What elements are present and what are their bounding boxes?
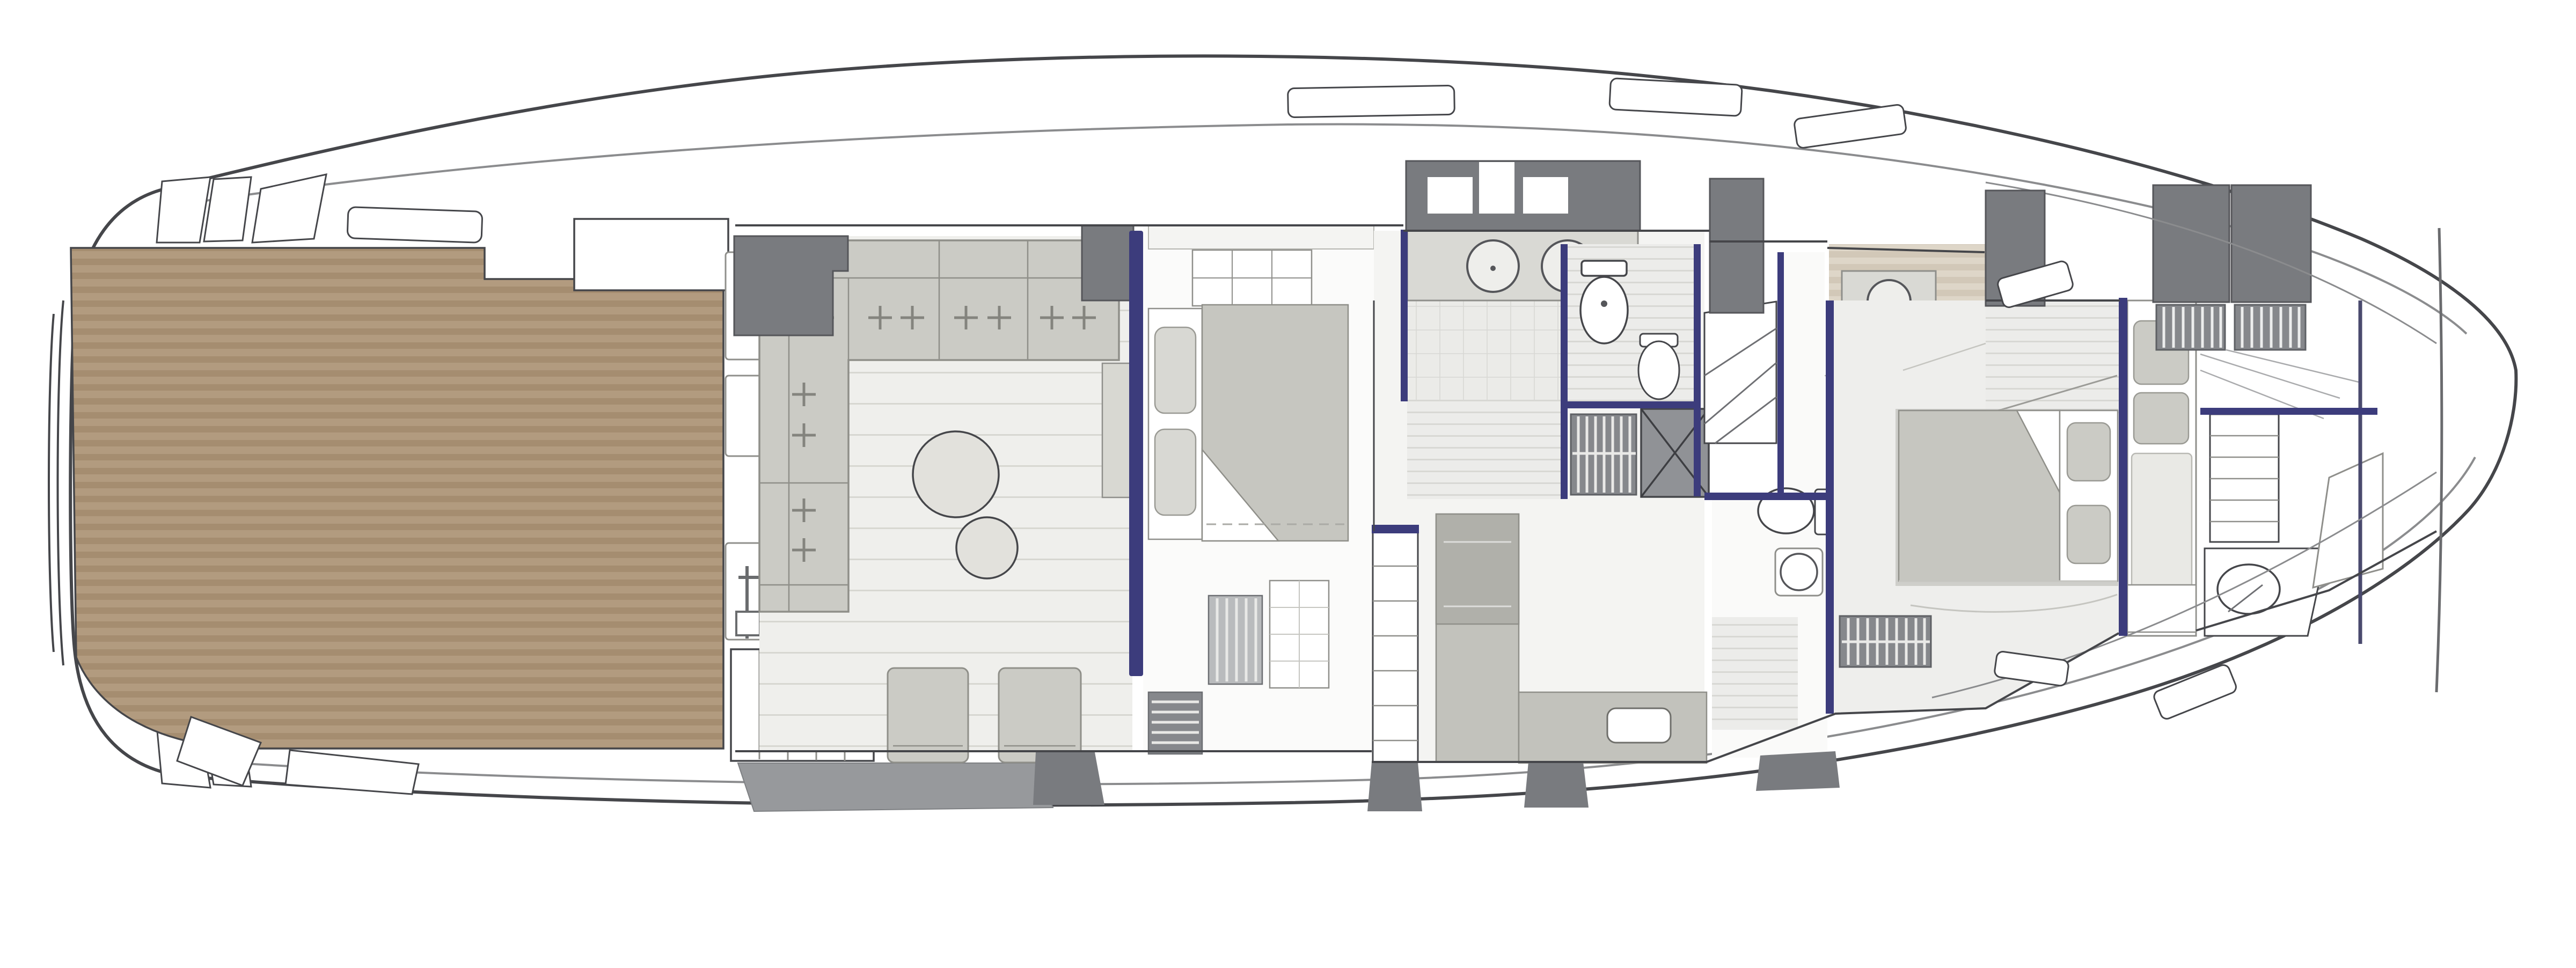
stairs-landing <box>738 763 1053 811</box>
wall-toiletroom-right <box>1694 244 1701 496</box>
master-pillow-1 <box>2067 423 2110 481</box>
coffee-table-small <box>956 517 1018 578</box>
floor-grating <box>1571 414 1636 495</box>
pier-3 <box>1524 762 1589 808</box>
day-head-bathroom <box>1407 231 1709 499</box>
toilet-room <box>1568 244 1694 405</box>
wall-stairs-cap <box>1372 525 1419 533</box>
vip-mirror-cabinet <box>1270 581 1329 688</box>
master-sink <box>1775 548 1823 596</box>
galley-sink <box>1607 708 1671 743</box>
master-bathroom <box>1712 488 1829 758</box>
bulkhead-salon-left <box>734 236 848 335</box>
galley-cooktop <box>1436 514 1519 624</box>
vip-pillow-2 <box>1155 429 1196 515</box>
berth-cushion-2 <box>2134 393 2189 444</box>
vip-window-sill <box>1148 225 1374 249</box>
wall-hall-left <box>1777 252 1784 494</box>
vip-cabin <box>1143 225 1374 754</box>
pier-2 <box>1367 762 1422 811</box>
master-cabin <box>1834 300 2119 714</box>
yacht-deck-plan-svg <box>0 0 2576 968</box>
armchair-left <box>888 668 968 762</box>
hatch-2 <box>1609 78 1743 116</box>
bidet <box>1638 334 1679 399</box>
bow-stairs <box>2210 414 2279 542</box>
wall-master-left <box>1826 300 1834 714</box>
aft-deck-teak <box>71 248 723 749</box>
wall-master-right <box>2119 298 2127 636</box>
armchair-right <box>999 668 1081 762</box>
crew-berth <box>2127 300 2196 636</box>
master-pillow-2 <box>2067 505 2110 563</box>
dayhead-shower-floor <box>1407 400 1561 499</box>
coffee-table-large <box>913 431 999 517</box>
hatch-1 <box>1288 85 1455 117</box>
toilet <box>1580 261 1628 343</box>
tv-sideboard <box>1102 363 1130 497</box>
vip-ac-grating <box>1148 692 1202 754</box>
master-bath-shower-floor <box>1712 617 1798 730</box>
wall-masterbath-top <box>1704 493 1833 500</box>
master-grating <box>1840 616 1931 667</box>
vip-louver-locker <box>1209 596 1262 684</box>
hallway-floor <box>1780 252 1825 494</box>
berth-foot-locker <box>2127 585 2196 632</box>
vip-sideboard <box>1192 250 1312 306</box>
mid-stairs <box>1373 531 1418 762</box>
bulkhead-dayhead <box>1406 161 1640 231</box>
swim-platform-edge <box>49 300 63 665</box>
handrail-bracket <box>736 612 760 635</box>
bulkhead-stairwell <box>1710 179 1763 313</box>
wall-dayhead-left <box>1401 230 1408 401</box>
wall-toiletroom-bottom <box>1561 401 1695 408</box>
floor-plan <box>0 0 2576 968</box>
bow-grating-1 <box>2156 305 2225 350</box>
wall-dayhead-mid <box>1561 244 1568 499</box>
dayhead-tile-floor <box>1407 300 1561 400</box>
wall-salon-vip <box>1129 231 1143 676</box>
cockpit-window <box>574 219 728 290</box>
bow-grating-2 <box>2235 305 2306 350</box>
vip-pillow-1 <box>1155 327 1196 413</box>
wall-bow-lower <box>2200 408 2377 415</box>
master-bed <box>1896 409 2118 612</box>
pier-1 <box>1033 752 1104 805</box>
pier-4 <box>1756 751 1840 791</box>
vip-bed <box>1148 305 1348 541</box>
bulkhead-salon-right <box>1082 225 1133 300</box>
